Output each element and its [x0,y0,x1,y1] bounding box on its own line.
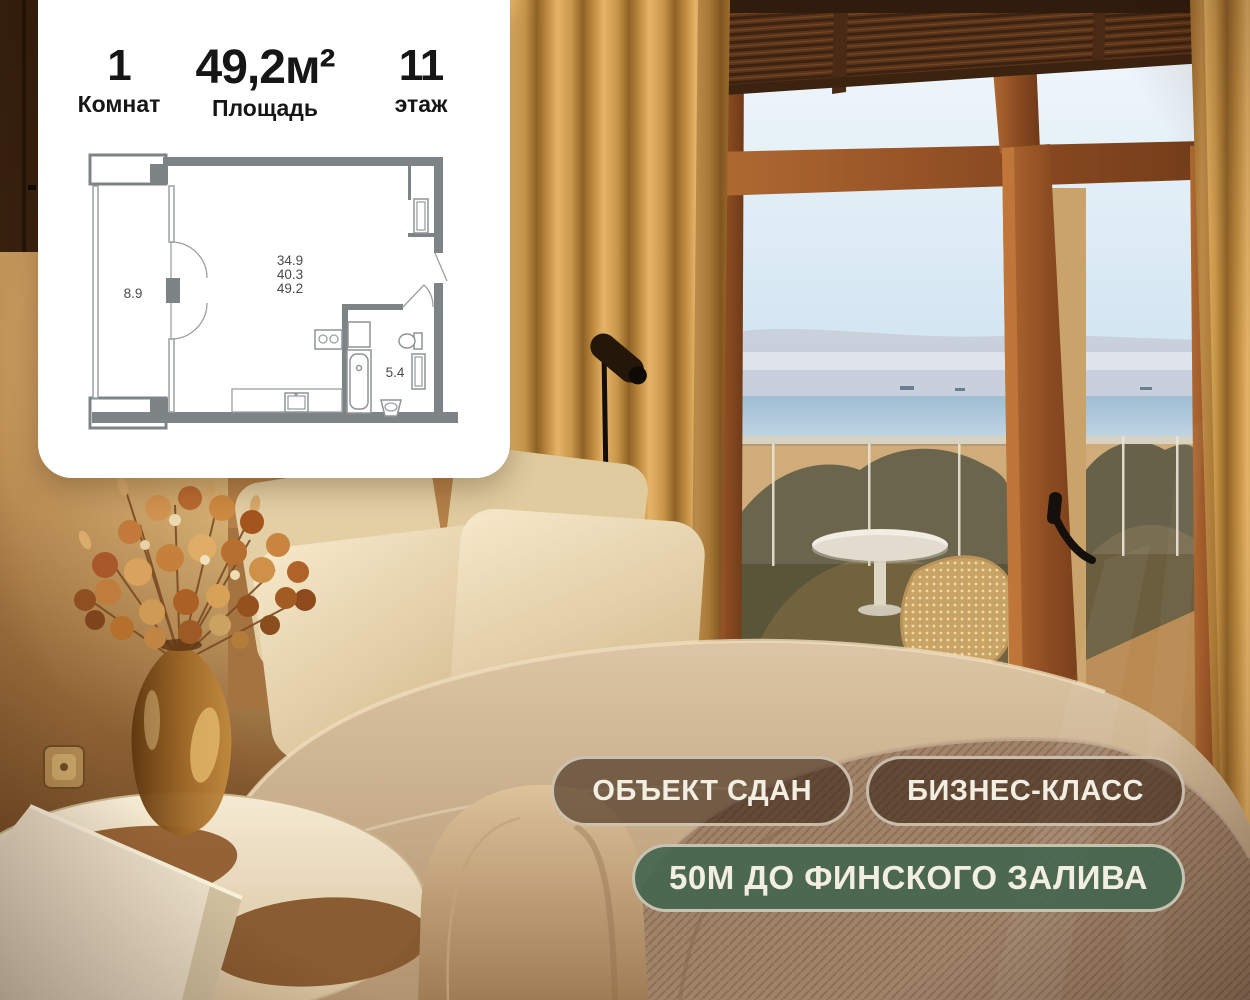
stat-floor-label: этаж [342,91,500,118]
bathroom-area-label: 5.4 [386,365,405,380]
stat-rooms-value: 1 [50,44,188,89]
floorplan-windows [93,186,428,412]
badge-label: ОБЪЕКТ СДАН [592,775,812,808]
stat-floor: 11 этаж [342,44,500,122]
badge-label: 50м ДО ФИНСКОГО ЗАЛИВА [669,859,1148,897]
stat-rooms: 1 Комнат [50,44,188,122]
stat-area: 49,2м² Площадь [188,44,342,122]
room-area-line2: 40.3 [277,267,303,282]
badge-row-bottom: 50м ДО ФИНСКОГО ЗАЛИВА [632,844,1185,912]
floorplan-walls [90,155,458,428]
badge-group: ОБЪЕКТ СДАН БИЗНЕС-КЛАСС 50м ДО ФИНСКОГО… [551,756,1185,912]
stat-area-value: 49,2м² [188,44,342,93]
room-area-line1: 34.9 [277,253,303,268]
loggia-area-label: 8.9 [124,286,143,301]
listing-image: 1 Комнат 49,2м² Площадь 11 этаж [0,0,1250,1000]
badge-row-top: ОБЪЕКТ СДАН БИЗНЕС-КЛАСС [551,756,1185,826]
stat-rooms-label: Комнат [50,91,188,118]
stat-area-label: Площадь [188,95,342,122]
stats-row: 1 Комнат 49,2м² Площадь 11 этаж [38,0,510,122]
room-area-line3: 49.2 [277,281,303,296]
badge-object-delivered: ОБЪЕКТ СДАН [551,756,853,826]
stat-floor-value: 11 [342,44,500,89]
floorplan-doors [171,242,447,339]
badge-label: БИЗНЕС-КЛАСС [907,775,1144,808]
badge-distance-to-gulf: 50м ДО ФИНСКОГО ЗАЛИВА [632,844,1185,912]
badge-business-class: БИЗНЕС-КЛАСС [866,756,1185,826]
info-card: 1 Комнат 49,2м² Площадь 11 этаж [38,0,510,478]
floorplan: 8.9 34.9 40.3 49.2 5.4 [38,130,510,478]
